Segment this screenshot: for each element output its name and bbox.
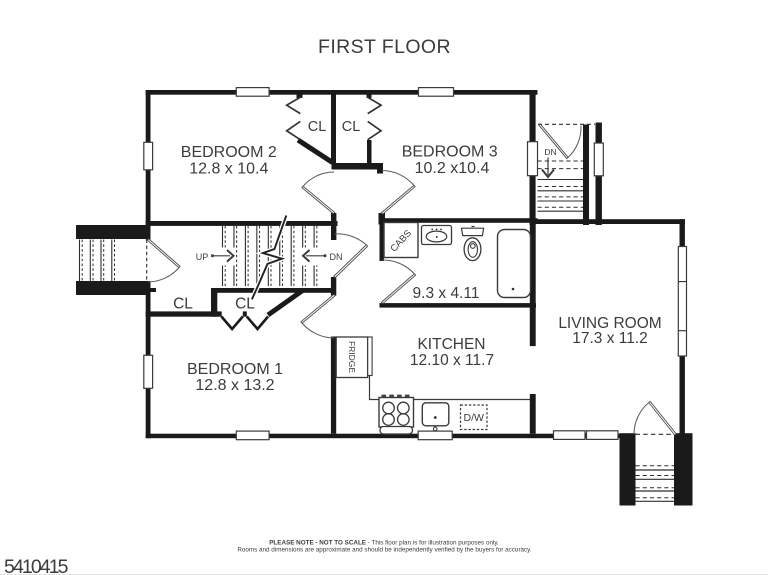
svg-text:FRIDGE: FRIDGE: [347, 341, 357, 373]
svg-text:CL: CL: [235, 296, 255, 313]
svg-text:DN: DN: [544, 147, 556, 157]
svg-text:BEDROOM 2: BEDROOM 2: [181, 144, 277, 161]
svg-text:CL: CL: [308, 119, 327, 135]
svg-text:CL: CL: [173, 296, 193, 313]
svg-text:BEDROOM 3: BEDROOM 3: [402, 144, 498, 161]
svg-text:17.3 x 11.2: 17.3 x 11.2: [572, 330, 648, 347]
svg-text:PLEASE NOTE - NOT TO SCALE - T: PLEASE NOTE - NOT TO SCALE - This floor …: [269, 539, 499, 546]
svg-text:FIRST FLOOR: FIRST FLOOR: [318, 36, 451, 58]
svg-text:9.3 x 4.11: 9.3 x 4.11: [413, 285, 480, 302]
svg-text:D/W: D/W: [463, 412, 484, 424]
svg-text:BEDROOM 1: BEDROOM 1: [187, 361, 283, 378]
svg-text:CL: CL: [342, 119, 361, 135]
svg-text:UP: UP: [196, 252, 209, 262]
svg-text:12.10 x 11.7: 12.10 x 11.7: [410, 352, 494, 369]
svg-text:12.8 x 10.4: 12.8 x 10.4: [189, 161, 268, 178]
svg-text:12.8 x 13.2: 12.8 x 13.2: [195, 377, 274, 394]
svg-text:5410415: 5410415: [4, 556, 69, 575]
svg-text:DN: DN: [330, 252, 343, 262]
svg-text:Rooms and dimensions are appro: Rooms and dimensions are approximate and…: [237, 547, 532, 554]
svg-text:10.2 x10.4: 10.2 x10.4: [415, 160, 490, 177]
svg-text:KITCHEN: KITCHEN: [417, 336, 485, 353]
